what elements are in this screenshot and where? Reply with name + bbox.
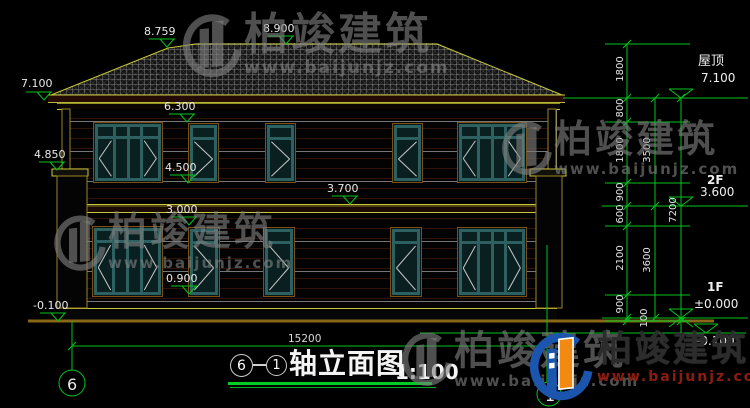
watermark-url: www.baijunjz.com [597,369,750,385]
watermark-left: 柏竣建筑 www.baijunjz.com [50,213,293,279]
title-axis-left-num: 6 [237,358,246,374]
floor-label-1f: 1F [707,281,724,293]
spot-label-f2-win-sill: 4.500 [165,162,197,173]
brand-logo-icon [398,330,454,394]
drawing-title: 轴立面图 [289,349,405,379]
floor-level-1f: ±0.000 [694,298,738,310]
spot-label-floor-band: 3.700 [327,183,359,194]
dim-2100: 2100 [616,238,626,278]
spot-label-pillar-cap: 4.850 [34,149,66,160]
watermark-colored: 柏竣建筑 www.baijunjz.com [523,332,750,408]
brand-logo-color-icon [523,332,597,408]
watermark-name: 柏竣建筑 [597,332,750,369]
brand-logo-icon [178,12,244,86]
spot-label-ridge-left: 8.759 [144,26,176,37]
elevation-drawing-canvas: 8.759 8.900 7.100 4.850 6.300 4.500 3.70… [0,0,750,408]
spot-label-f2-win-top: 6.300 [164,101,196,112]
watermark-url: www.baijunjz.com [108,254,293,272]
dim-3600: 3600 [643,240,653,280]
dim-1800a: 1800 [616,49,626,89]
watermark-url: www.baijunjz.com [244,58,450,78]
title-dash [253,364,266,366]
dim-600: 600 [616,194,626,234]
floor-level-2f: 3.600 [700,186,734,198]
watermark-url: www.baijunjz.com [554,160,739,178]
overall-width-dimension: 15200 [288,334,321,345]
brand-logo-icon [50,213,108,279]
spot-label-eave: 7.100 [21,78,53,89]
axis-bubble-6-number: 6 [67,375,77,394]
floor-label-roof: 屋顶 [698,56,724,68]
brand-logo-icon [498,120,554,182]
watermark-right: 柏竣建筑 www.baijunjz.com [498,120,739,182]
dim-900b: 900 [616,284,626,324]
watermark-name: 柏竣建筑 [554,120,739,160]
watermark-name: 柏竣建筑 [108,213,293,254]
right-dimension-lines [420,40,748,333]
watermark-name: 柏竣建筑 [244,12,450,58]
title-axis-right-num: 1 [272,358,280,373]
title-axis-bubble-right: 1 [266,355,287,376]
dim-7200: 7200 [669,190,679,230]
watermark-top: 柏竣建筑 www.baijunjz.com [178,12,450,86]
title-axis-bubble-left: 6 [230,354,253,377]
floor-level-roof: 7.100 [701,72,735,84]
spot-label-ground-left: -0.100 [33,300,68,311]
